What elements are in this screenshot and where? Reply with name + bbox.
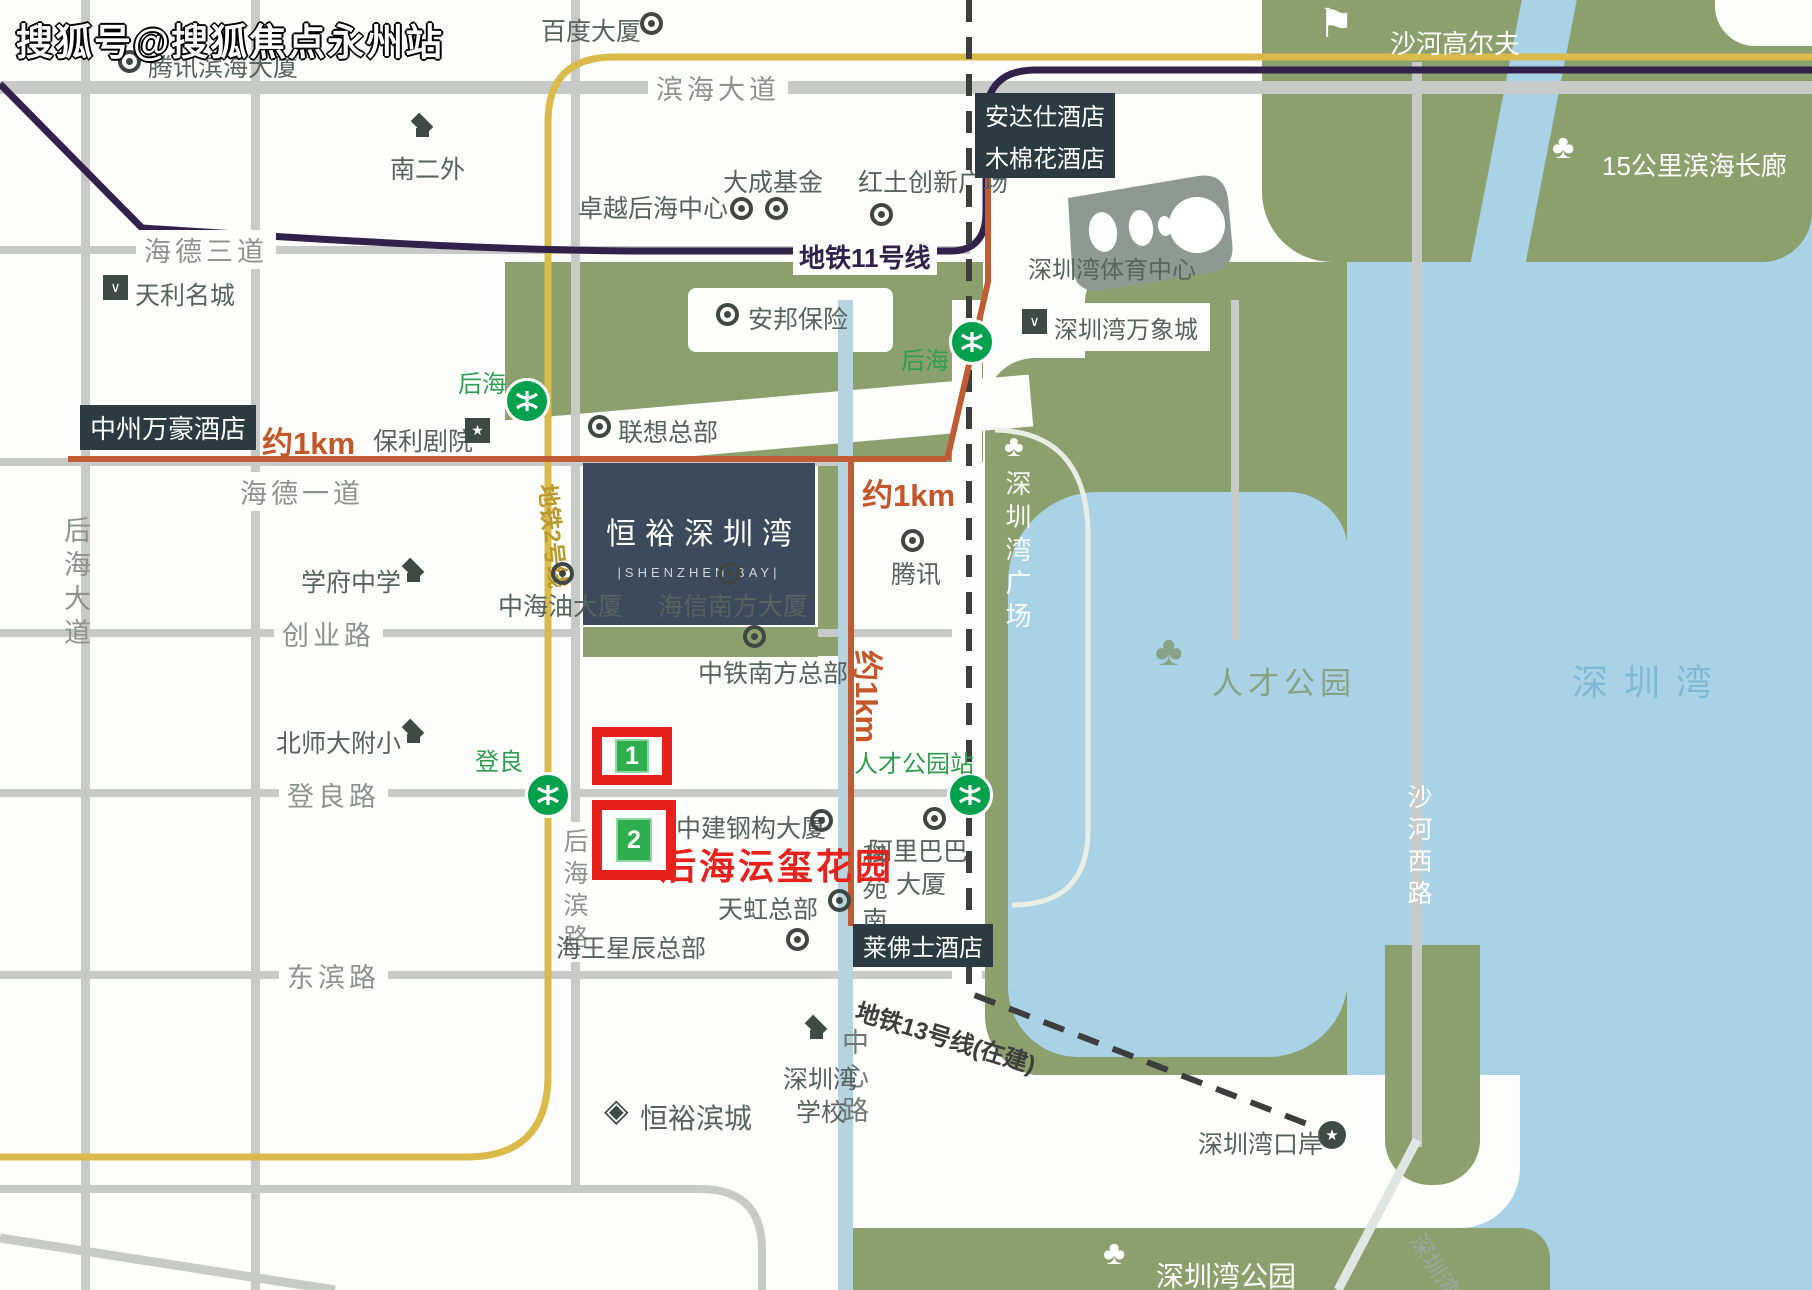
school-icon-nan2wai — [404, 114, 440, 142]
label-poly: 保利剧院 — [373, 422, 473, 458]
marker-dacheng — [765, 197, 788, 220]
road-shahexi — [1412, 62, 1422, 1147]
tree-icon-szbay-park: ♣ — [1103, 1236, 1125, 1270]
marker-crcc — [743, 625, 766, 648]
road-park-inner — [1231, 300, 1239, 640]
road-bottom-curve — [0, 1189, 762, 1290]
logo-hengyu-bincheng: ◈ — [604, 1094, 629, 1126]
building-icon-tianli: ∨ — [103, 275, 128, 300]
school-icon-xuefu — [395, 559, 431, 587]
label-xuefu: 学府中学 — [301, 563, 401, 599]
marker-alibaba — [923, 807, 946, 830]
metro-icon-houhai-2 — [949, 319, 995, 365]
school-icon-szbay — [798, 1016, 834, 1044]
label-mixc: 深圳湾万象城 — [1054, 310, 1198, 345]
label-dongbin: 东滨路 — [279, 956, 388, 995]
label-chuangye: 创业路 — [274, 614, 383, 653]
marker-zhuoyue — [730, 197, 753, 220]
label-binhai-avenue: 滨海大道 — [648, 68, 788, 107]
label-golf: 沙河高尔夫 — [1390, 24, 1520, 61]
label-yunxi-garden: 后海沄玺花园 — [660, 838, 894, 890]
tree-icon-corridor: ♣ — [1552, 130, 1574, 164]
tree-icon-szbay-plaza: ♣ — [1004, 432, 1024, 462]
label-szbay-port: 深圳湾口岸 — [1198, 1125, 1323, 1161]
station-houhai-label: 后海 — [458, 364, 506, 399]
label-nan2wai: 南二外 — [390, 150, 465, 186]
label-talent-park: 人才公园 — [1212, 658, 1356, 703]
road-bottom-diagonal — [0, 1238, 335, 1290]
label-szbay-school-2: 学校 — [796, 1093, 846, 1129]
label-dengliang-road: 登良路 — [279, 775, 388, 814]
project-south-green — [583, 627, 818, 657]
marker-hongtu — [870, 203, 893, 226]
label-szbay-park: 深圳湾公园 — [1156, 1255, 1296, 1290]
tree-icon-talent-park: ♣ — [1155, 630, 1183, 672]
marker-cnooc — [551, 562, 574, 585]
location-map: 滨海大道 海德三道 海德一道 创业路 登良路 东滨路 后海大道 后海滨路 中心路… — [0, 0, 1812, 1290]
road-zhongxin — [838, 300, 853, 1290]
label-hisense: 海信南方大厦 — [658, 587, 808, 623]
distance-1km-west: 约1km — [262, 418, 355, 463]
distance-1km-south: 约1km — [847, 650, 892, 743]
school-icon-bnu — [395, 720, 431, 748]
label-haide-1: 海德一道 — [232, 472, 372, 511]
label-alibaba-2: 大厦 — [896, 865, 946, 901]
plot-2-number: 2 — [616, 818, 652, 862]
label-tencent: 腾讯 — [891, 555, 941, 591]
label-tianli: 天利名城 — [135, 276, 235, 312]
metro-icon-dengliang — [525, 772, 571, 818]
station-rencai-label: 人才公园站 — [854, 744, 974, 779]
badge-andaz: 安达仕酒店 — [975, 93, 1115, 136]
label-hengyu-bincheng: 恒裕滨城 — [640, 1097, 752, 1137]
badge-cotton: 木棉花酒店 — [975, 135, 1115, 178]
marker-baidu — [640, 12, 663, 35]
badge-marriott: 中州万豪酒店 — [80, 405, 256, 450]
label-haide-3: 海德三道 — [136, 230, 276, 269]
peninsula — [1385, 945, 1480, 1185]
plot-box-2: 2 — [592, 800, 676, 880]
theatre-icon-poly: ★ — [465, 418, 490, 443]
plot-box-1: 1 — [592, 727, 672, 785]
metro-icon-houhai — [504, 378, 550, 424]
label-szbay-school-1: 深圳湾 — [783, 1060, 858, 1096]
label-sports-center: 深圳湾体育中心 — [1028, 250, 1196, 285]
talent-park-lake — [1008, 492, 1348, 1057]
marker-rainbow — [828, 889, 851, 912]
marker-neptunus — [786, 928, 809, 951]
marker-cscec — [810, 809, 833, 832]
label-lenovo: 联想总部 — [618, 413, 718, 449]
project-name: 恒裕深圳湾 — [597, 509, 801, 553]
marker-tencent — [901, 529, 924, 552]
label-crcc: 中铁南方总部 — [698, 654, 848, 690]
station-dengliang-label: 登良 — [475, 742, 523, 777]
label-zhuoyue: 卓越后海中心 — [578, 189, 728, 225]
label-metro-11: 地铁11号线 — [793, 238, 937, 275]
label-houhai-avenue: 后海大道 — [48, 516, 103, 652]
marker-hisense — [718, 562, 741, 585]
label-shenzhen-bay: 深圳湾 — [1572, 654, 1728, 706]
building-icon-mixc: ∨ — [1022, 309, 1047, 334]
label-dacheng: 大成基金 — [723, 163, 823, 199]
label-corridor15km: 15公里滨海长廊 — [1602, 146, 1787, 183]
plot-1-number: 1 — [615, 739, 649, 773]
distance-1km-east: 约1km — [862, 470, 955, 515]
marker-anbang — [716, 303, 739, 326]
label-szbay-plaza: 深圳湾广场 — [999, 470, 1036, 635]
label-cnooc: 中海油大厦 — [498, 587, 623, 623]
label-shahexi: 沙河西路 — [1400, 784, 1436, 912]
road-vertical-2 — [251, 0, 260, 1290]
golf-flag-icon: ⚑ — [1318, 4, 1354, 44]
label-bnu-primary: 北师大附小 — [276, 724, 401, 760]
label-baidu: 百度大厦 — [541, 12, 641, 48]
station-houhai2-label: 后海 — [901, 341, 949, 376]
label-neptunus: 海王星辰总部 — [556, 929, 706, 965]
label-anbang: 安邦保险 — [748, 300, 848, 336]
marker-lenovo — [588, 415, 611, 438]
badge-raffles: 莱佛士酒店 — [853, 924, 993, 967]
project-name-en: |SHENZHEN BAY| — [618, 565, 781, 580]
label-rainbow: 天虹总部 — [718, 890, 818, 926]
watermark: 搜狐号@搜狐焦点永州站 — [16, 12, 444, 66]
